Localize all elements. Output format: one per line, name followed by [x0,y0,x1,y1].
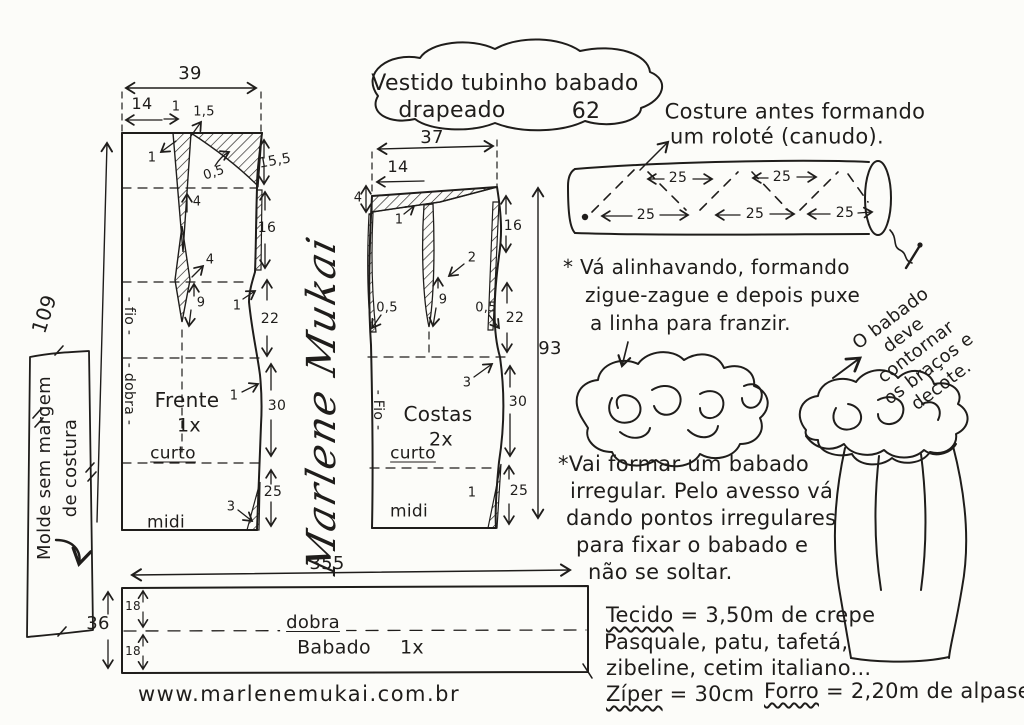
materials-lining-label: Forro [764,679,819,703]
frente-shoulder-drop-label: 1,5 [193,106,215,119]
materials-zipper-value: = 30cm [670,682,755,706]
frente-seg-16-label: 16 [258,221,276,235]
babado-piece-fold-label: dobra [280,614,346,632]
costas-curto-label: curto [390,446,436,463]
rolote-caption-line2: um roloté (canudo). [670,127,884,148]
costas-ease-left-label: 0,5 [376,302,398,315]
babado-piece-qty: 1x [400,639,424,658]
title-line1: Vestido tubinho babado [371,73,638,95]
rolote-seg-label: 25 [836,206,854,220]
frente-seg-30-label: 30 [268,399,286,413]
costas-dart-width-label: 2 [468,252,477,265]
babado-piece-half-top-label: 18 [125,600,141,612]
note1-arrow [622,342,628,366]
frente-dart-width-label: 4 [206,254,215,267]
frente-dart-note-label: 1 [148,152,157,165]
frente-dart-length-label: 9 [197,297,206,310]
frente-dart-gap-label: 4 [193,196,202,209]
frente-seg-22-label: 22 [261,312,279,326]
rolote-seg-label: 25 [637,208,655,222]
note2-line2: irregular. Pelo avesso vá [570,479,833,504]
materials-lining-value: = 2,20m de alpaseda. [826,679,1024,703]
costas-seg-30-label: 30 [509,395,527,409]
website-url: www.marlenemukai.com.br [138,682,460,707]
costas-pattern-drawing [366,140,538,528]
title-line2: drapeado [398,100,505,122]
materials-zipper-line: Zíper = 30cm [606,682,754,707]
babado-piece-name: Babado [297,639,371,658]
rolote-seg-label: 25 [669,171,687,185]
materials-fabric-label: Tecido [606,603,674,627]
ruffle-scribble-drawing [577,352,768,466]
molde-note-line2: de costura [58,376,84,560]
costas-hem-note-label: 1 [468,487,477,500]
frente-piece-qty: 1x [177,417,201,436]
babado-piece-height-label: 36 [86,615,110,633]
costas-total-height-label: 93 [538,340,562,358]
note2-line1: *Vai formar um babado [558,452,809,477]
frente-neck-width-label: 14 [132,96,153,112]
costas-neck-width-label: 14 [388,159,409,175]
costas-piece-name: Costas [404,404,473,424]
frente-grain-label: - fio - [122,297,136,336]
costas-dart-length-label: 9 [439,294,448,307]
title-number: 62 [572,101,601,123]
materials-line2: Pasquale, patu, tafetá, [604,630,848,655]
rolote-caption-line1: Costure antes formando [665,102,926,123]
signature-watermark: Marlene Mukai [299,231,345,579]
note1-line3: a linha para franzir. [590,311,791,335]
frente-fold-label: - dobra - [122,363,136,425]
rolote-seg-label: 25 [773,170,791,184]
rolote-tube-drawing [568,142,923,268]
costas-seg-22-label: 22 [506,311,524,325]
frente-tick-label: 1 [172,101,181,114]
costas-shoulder-note-label: 1 [395,214,404,227]
costas-hip-note-label: 3 [463,377,472,390]
materials-fabric-line: Tecido = 3,50m de crepe [606,603,875,628]
costas-seg-16-label: 16 [504,219,522,233]
note2-line4: para fixar o babado e [576,533,808,558]
costas-ease-right-label: 0,5 [475,302,497,315]
note1-line2: zigue-zague e depois puxe [585,283,860,307]
molde-note: Molde sem margem de costura [32,376,84,560]
materials-line3: zibeline, cetim italiano... [606,656,871,681]
frente-hem-note-label: 3 [227,501,236,514]
costas-shoulder-seam-label: 4 [354,192,363,205]
materials-zipper-label: Zíper [606,682,663,706]
frente-midi-label: midi [147,515,185,532]
costas-width-label: 37 [420,129,444,147]
materials-fabric-value: = 3,50m de crepe [681,603,876,627]
frente-hip-note-label: 1 [230,390,239,403]
molde-note-line1: Molde sem margem [32,376,58,560]
note2-line3: dando pontos irregulares [566,506,836,531]
frente-seg-25-label: 25 [264,485,282,499]
costas-grain-label: - Fio - [371,390,385,431]
frente-waist-note-label: 1 [233,300,242,313]
sewing-pattern-sheet: Vestido tubinho babado drapeado 62 39 14… [0,0,1024,725]
note1-line1: * Vá alinhavando, formando [563,255,850,279]
costas-seg-25-label: 25 [510,484,528,498]
frente-curto-label: curto [150,446,196,463]
costas-midi-label: midi [390,504,428,521]
materials-lining-line: Forro = 2,20m de alpaseda. [764,679,1024,704]
note2-line5: não se soltar. [588,560,733,585]
rolote-seg-label: 25 [746,207,764,221]
babado-piece-drawing [108,570,592,678]
babado-piece-half-bottom-label: 18 [125,645,141,657]
frente-width-label: 39 [178,65,202,83]
frente-piece-name: Frente [155,390,220,410]
